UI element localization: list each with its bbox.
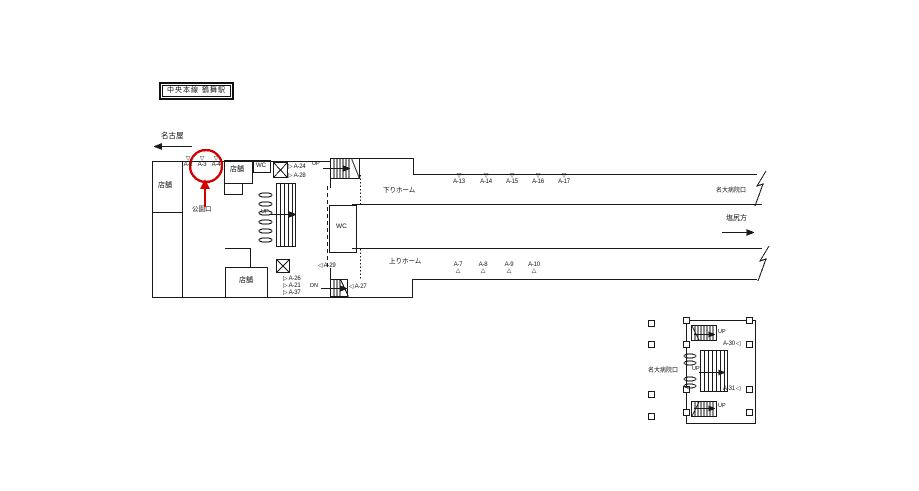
station-floorplan: 中央本線 鶴舞駅 名古屋 塩尻方 公園口 名大病院口 下りホーム 上りホーム 店… (0, 0, 919, 491)
triangle-right-icon: ▷ (283, 290, 288, 296)
ad-position-a29[interactable]: ◁ A-29 (318, 263, 336, 269)
triangle-left-icon: ◁ (736, 341, 741, 347)
break-mark-lower (758, 246, 769, 281)
ad-position-a17[interactable]: ▽ A-17 (553, 173, 575, 185)
arrow-right-icon (709, 406, 715, 410)
triangle-right-icon: ▷ (283, 276, 288, 282)
hospital-exit-label: 名大病院口 (716, 188, 746, 194)
ad-position-a14[interactable]: ▽ A-14 (475, 173, 497, 185)
direction-arrows (155, 144, 754, 235)
break-mark-upper (755, 171, 766, 206)
shop-label-left: 店舗 (158, 182, 172, 189)
ad-position-a4[interactable]: ▽ A-4 (206, 156, 226, 168)
ad-position-a10[interactable]: A-10 △ (523, 262, 545, 274)
triangle-right-icon: ▷ (288, 164, 293, 170)
arrow-right-icon (289, 212, 296, 217)
direction-nagoya-label: 名古屋 (161, 132, 184, 140)
triangle-up-icon: △ (456, 268, 461, 274)
arrow-left-icon (155, 144, 162, 149)
triangle-right-icon: ▷ (288, 173, 293, 179)
triangle-left-icon: ◁ (349, 284, 354, 290)
arrow-right-icon (719, 370, 725, 374)
minimap-up-label-center: UP (692, 367, 700, 373)
direction-shiojiri-label: 塩尻方 (726, 215, 747, 222)
floorplan-linework (0, 0, 919, 491)
ad-position-a16[interactable]: ▽ A-16 (527, 173, 549, 185)
shop-label-top: 店舗 (230, 166, 244, 173)
wc-label-top: WC (256, 163, 266, 169)
park-exit-label: 公園口 (192, 207, 212, 214)
ad-position-a7[interactable]: A-7 △ (447, 262, 469, 274)
down-platform-label: 下りホーム (383, 188, 415, 195)
ad-position-a8[interactable]: A-8 △ (472, 262, 494, 274)
up-label-north-stairs: UP (312, 162, 320, 168)
ticket-gates (259, 193, 272, 242)
triangle-up-icon: △ (532, 268, 537, 274)
shop-label-bottom: 店舗 (239, 277, 253, 284)
wc-label-mid: WC (336, 224, 347, 231)
triangle-up-icon: △ (481, 268, 486, 274)
triangle-left-icon: ◁ (318, 263, 323, 269)
map-title: 中央本線 鶴舞駅 (162, 85, 231, 97)
arrow-right-icon (709, 332, 715, 336)
ad-position-a30[interactable]: A-30 ◁ (723, 341, 741, 347)
up-platform-label: 上りホーム (389, 259, 421, 266)
platform-break-marks (755, 171, 769, 281)
ad-position-a24[interactable]: ▷ A-24 (288, 164, 306, 170)
elevators (274, 163, 290, 273)
ad-position-a9[interactable]: A-9 △ (498, 262, 520, 274)
triangle-up-icon: △ (507, 268, 512, 274)
ad-position-a28[interactable]: ▷ A-28 (288, 173, 306, 179)
triangle-right-icon: ▷ (283, 283, 288, 289)
minimap-hospital-exit-label: 名大病院口 (648, 368, 678, 374)
ad-position-a15[interactable]: ▽ A-15 (501, 173, 523, 185)
ad-position-a13[interactable]: ▽ A-13 (448, 173, 470, 185)
minimap-up-label-top: UP (718, 330, 726, 336)
ad-position-a26[interactable]: ▷ A-26 (283, 276, 301, 282)
ad-position-a27[interactable]: ◁ A-27 (349, 284, 367, 290)
dn-label-south-stairs: DN (310, 284, 318, 290)
map-title-box: 中央本線 鶴舞駅 (159, 82, 234, 100)
ad-position-a31[interactable]: A-31 ◁ (723, 386, 741, 392)
arrow-right-icon (747, 230, 754, 235)
ad-position-a21[interactable]: ▷ A-21 (283, 283, 301, 289)
triangle-left-icon: ◁ (736, 386, 741, 392)
up-label-center-stairs: UP (261, 210, 269, 216)
minimap-up-label-bottom: UP (718, 404, 726, 410)
ad-position-a37[interactable]: ▷ A-37 (283, 290, 301, 296)
